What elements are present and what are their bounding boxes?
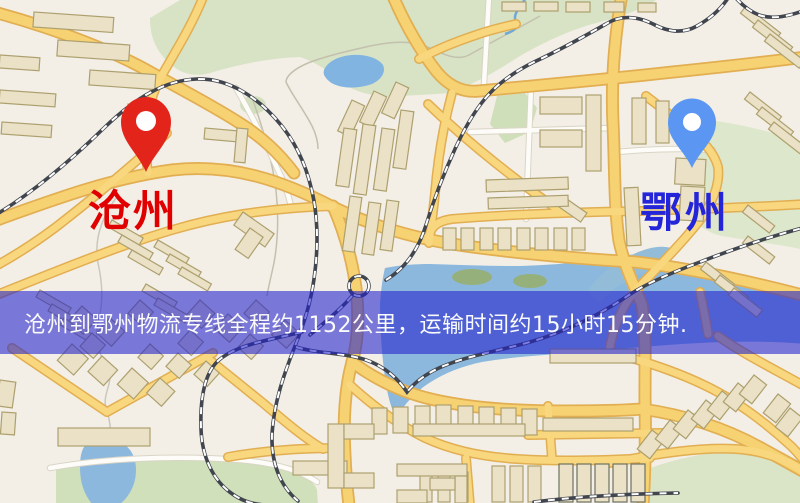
logistics-route-map: 沧州 鄂州 沧州到鄂州物流专线全程约1152公里，运输时间约15小时15分钟. (0, 0, 800, 503)
map-illustration (0, 0, 800, 503)
pond (80, 439, 136, 503)
route-info-banner: 沧州到鄂州物流专线全程约1152公里，运输时间约15小时15分钟. (0, 291, 800, 354)
origin-city-label: 沧州 (88, 177, 178, 239)
route-info-text: 沧州到鄂州物流专线全程约1152公里，运输时间约15小时15分钟. (0, 307, 687, 339)
destination-city-label: 鄂州 (640, 179, 730, 240)
